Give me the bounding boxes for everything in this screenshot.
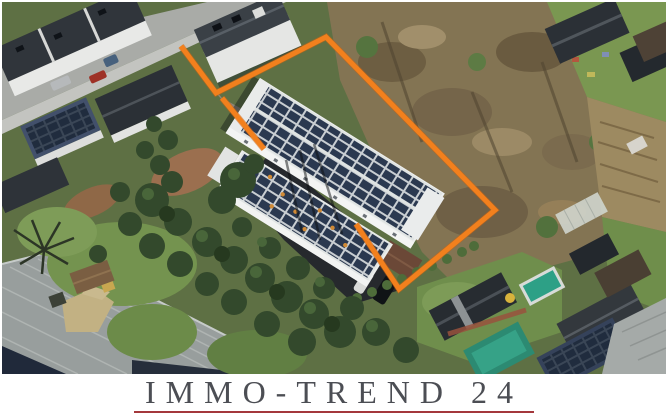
aerial-photo <box>2 2 666 374</box>
logo-text: IMMO-TREND 24 <box>0 374 668 411</box>
logo-banner: IMMO-TREND 24 <box>0 374 668 420</box>
logo-underline <box>134 411 534 413</box>
listing-image: IMMO-TREND 24 <box>0 0 668 420</box>
